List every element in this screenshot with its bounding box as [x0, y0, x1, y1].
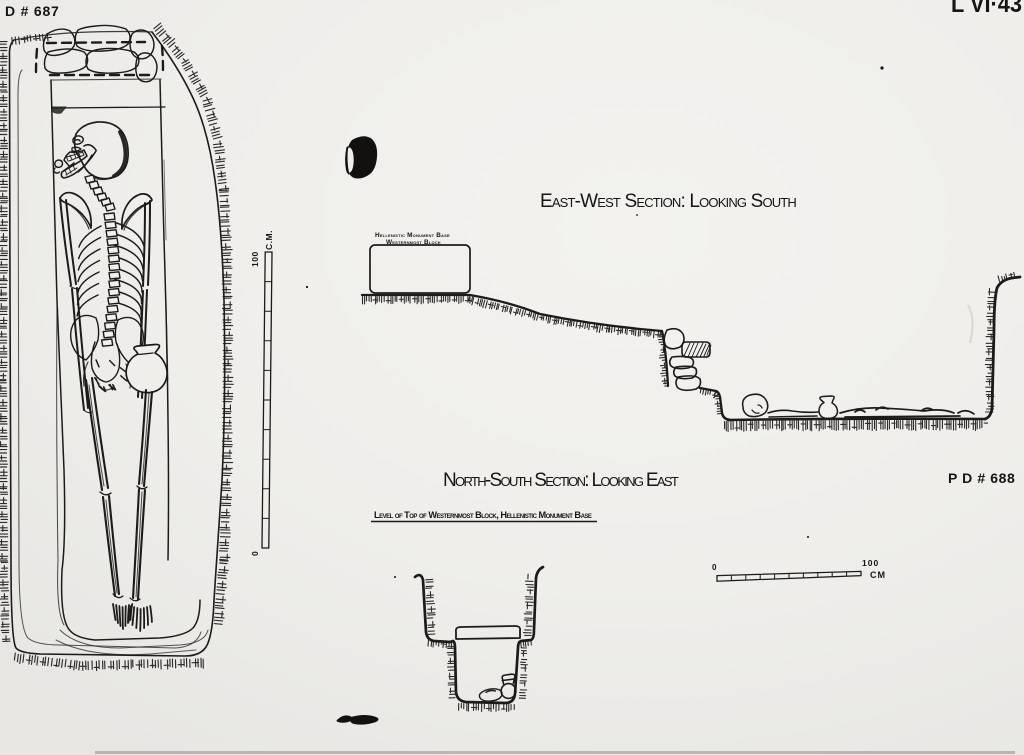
- svg-text:0: 0: [250, 551, 260, 556]
- svg-text:P D # 688: P D # 688: [948, 470, 1015, 486]
- svg-text:100: 100: [862, 558, 879, 568]
- svg-text:Level of Top of Westernmost Bl: Level of Top of Westernmost Block, Helle…: [374, 510, 592, 520]
- svg-text:D # 687: D # 687: [5, 3, 60, 19]
- svg-text:100: 100: [250, 251, 260, 267]
- svg-text:North-South Section: Looking E: North-South Section: Looking East: [443, 470, 680, 491]
- svg-text:C.M.: C.M.: [264, 230, 274, 250]
- svg-text:L VI·43: L VI·43: [951, 0, 1022, 18]
- svg-text:Hellenistic Monument Base: Hellenistic Monument Base: [375, 232, 450, 239]
- svg-text:East-West Section: Looking Sou: East-West Section: Looking South: [540, 191, 798, 212]
- svg-text:0: 0: [712, 563, 717, 572]
- svg-text:CM: CM: [870, 570, 886, 580]
